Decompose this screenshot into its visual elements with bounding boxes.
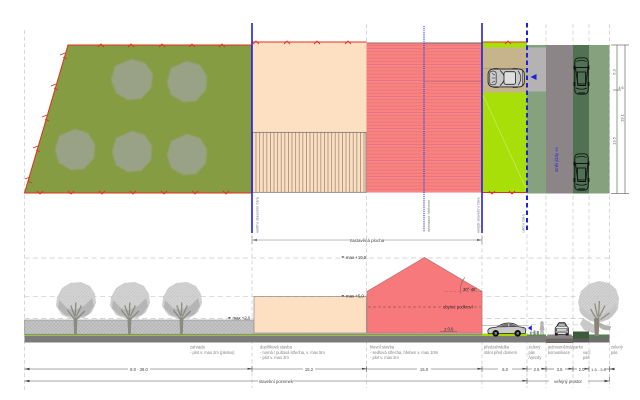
- svg-text:- plot v. max 2m: - plot v. max 2m: [370, 355, 399, 360]
- svg-text:2.0: 2.0: [579, 367, 585, 372]
- svg-text:vnitřní stavební čára: vnitřní stavební čára: [255, 196, 260, 233]
- svg-text:6.3: 6.3: [612, 68, 617, 74]
- svg-text:zelený: zelený: [529, 344, 542, 349]
- svg-text:pás: pás: [583, 355, 590, 360]
- svg-text:jednosměrná/parko: jednosměrná/parko: [547, 344, 584, 349]
- svg-text:stání před domem: stání před domem: [484, 350, 518, 355]
- svg-text:předzahrádka: předzahrádka: [484, 344, 510, 349]
- svg-text:- sedlová střecha, hřeben v. m: - sedlová střecha, hřeben v. max 10m: [370, 350, 439, 355]
- svg-text:orientace hřebene: orientace hřebene: [426, 199, 431, 232]
- svg-text:max +2,0: max +2,0: [233, 316, 251, 321]
- svg-text:- plot v. max 2m (pletivo): - plot v. max 2m (pletivo): [190, 350, 235, 355]
- svg-text:směr jízdy »»: směr jízdy »»: [554, 146, 559, 172]
- svg-text:30°-45°: 30°-45°: [463, 287, 477, 292]
- svg-text:4.6: 4.6: [619, 86, 624, 90]
- svg-text:obytné podkroví: obytné podkroví: [443, 305, 474, 310]
- svg-text:6.0: 6.0: [502, 367, 508, 372]
- svg-text:15.2: 15.2: [305, 367, 314, 372]
- svg-text:15.0: 15.0: [420, 367, 429, 372]
- svg-text:zahrada: zahrada: [190, 344, 206, 349]
- svg-text:max +5,0: max +5,0: [346, 294, 364, 299]
- svg-text:- plot v. max 2m: - plot v. max 2m: [260, 355, 289, 360]
- svg-text:vací: vací: [583, 350, 591, 355]
- svg-text:vnější stavební čára: vnější stavební čára: [476, 197, 481, 233]
- svg-text:stavební pozemek: stavební pozemek: [259, 379, 294, 384]
- svg-text:± 0,0: ± 0,0: [444, 327, 454, 332]
- svg-text:doplňková stavba: doplňková stavba: [260, 344, 293, 349]
- svg-text:- rovná / pultová střecha, v.: - rovná / pultová střecha, v. max 5m: [260, 350, 325, 355]
- svg-text:1.5 - 3.0: 1.5 - 3.0: [591, 367, 606, 372]
- svg-text:19.1: 19.1: [620, 113, 625, 122]
- svg-text:pás: pás: [529, 350, 536, 355]
- svg-text:zelený: zelený: [611, 344, 624, 349]
- svg-text:8.0 - 39.0: 8.0 - 39.0: [130, 367, 148, 372]
- svg-text:/vjezdy: /vjezdy: [529, 355, 543, 360]
- svg-text:max +10,0: max +10,0: [346, 255, 367, 260]
- svg-text:13.5: 13.5: [612, 136, 617, 145]
- svg-text:2.5: 2.5: [534, 367, 540, 372]
- svg-text:komunikace: komunikace: [548, 350, 571, 355]
- svg-text:hlavní stavba: hlavní stavba: [370, 344, 395, 349]
- svg-text:zastavěná plocha: zastavěná plocha: [350, 238, 385, 243]
- svg-text:3.5: 3.5: [557, 367, 563, 372]
- svg-text:uliční čára: uliční čára: [521, 213, 526, 232]
- svg-text:pás: pás: [611, 350, 618, 355]
- svg-text:veřejný prostor: veřejný prostor: [554, 379, 582, 384]
